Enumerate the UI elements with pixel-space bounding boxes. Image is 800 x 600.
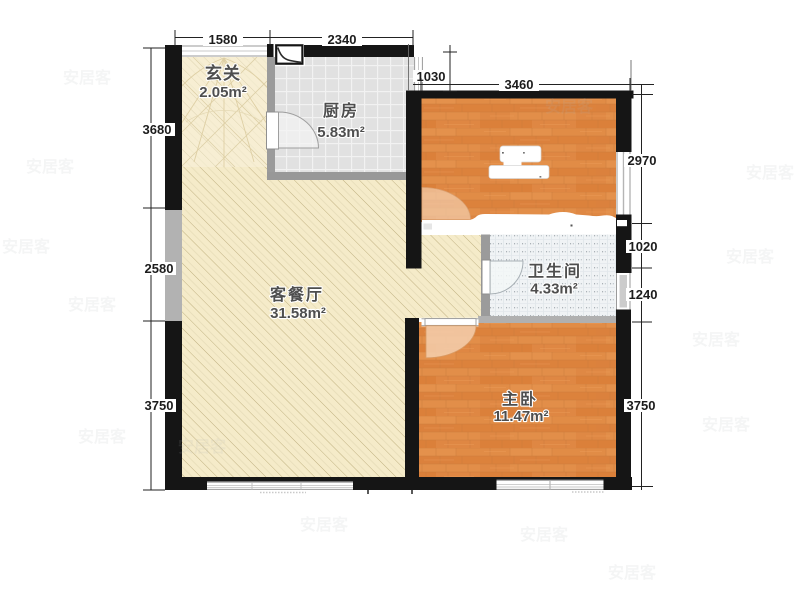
svg-text:安居客: 安居客: [608, 563, 657, 582]
svg-text:2970: 2970: [628, 153, 657, 168]
svg-text:5.83m²: 5.83m²: [317, 124, 365, 141]
svg-text:安居客: 安居客: [178, 437, 227, 456]
svg-text:3460: 3460: [505, 77, 534, 92]
svg-text:4.33m²: 4.33m²: [530, 281, 578, 298]
svg-text:主卧: 主卧: [502, 390, 538, 409]
svg-text:2.05m²: 2.05m²: [199, 84, 247, 101]
svg-text:31.58m²: 31.58m²: [270, 305, 326, 322]
svg-text:安居客: 安居客: [78, 427, 127, 446]
svg-text:玄关: 玄关: [205, 63, 241, 83]
svg-text:安居客: 安居客: [520, 525, 569, 544]
svg-text:2580: 2580: [145, 261, 174, 276]
svg-text:安居客: 安居客: [545, 97, 594, 116]
svg-text:3680: 3680: [143, 122, 172, 137]
svg-text:安居客: 安居客: [726, 247, 775, 266]
svg-text:安居客: 安居客: [26, 157, 75, 176]
svg-text:3750: 3750: [145, 398, 174, 413]
svg-text:2340: 2340: [328, 32, 357, 47]
svg-text:卫生间: 卫生间: [528, 262, 582, 281]
svg-text:安居客: 安居客: [702, 415, 751, 434]
svg-text:客餐厅: 客餐厅: [270, 285, 324, 304]
svg-text:1020: 1020: [629, 239, 658, 254]
svg-text:安居客: 安居客: [746, 163, 795, 182]
svg-text:厨房: 厨房: [323, 101, 359, 120]
svg-text:1580: 1580: [209, 32, 238, 47]
svg-text:安居客: 安居客: [68, 295, 117, 314]
svg-text:3750: 3750: [627, 398, 656, 413]
svg-text:安居客: 安居客: [692, 330, 741, 349]
svg-text:安居客: 安居客: [2, 237, 51, 256]
svg-text:11.47m²: 11.47m²: [493, 408, 548, 425]
svg-text:安居客: 安居客: [300, 515, 349, 534]
svg-text:1240: 1240: [629, 287, 658, 302]
svg-text:安居客: 安居客: [63, 68, 112, 87]
